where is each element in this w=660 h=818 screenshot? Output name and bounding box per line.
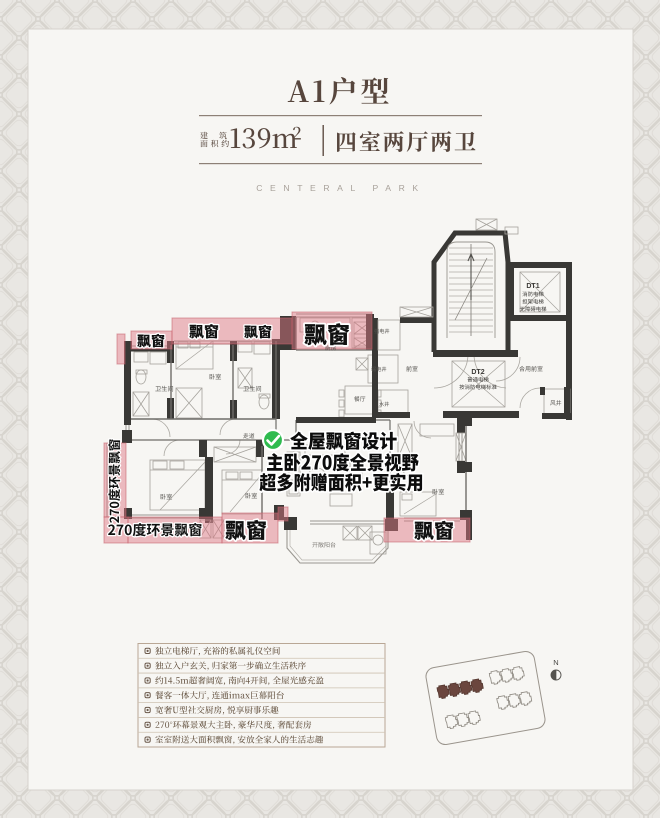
svg-text:CENTERAL PARK: CENTERAL PARK (256, 183, 425, 193)
svg-text:DT2: DT2 (471, 369, 484, 376)
svg-text:DT1: DT1 (526, 283, 539, 290)
svg-text:N: N (553, 658, 558, 667)
